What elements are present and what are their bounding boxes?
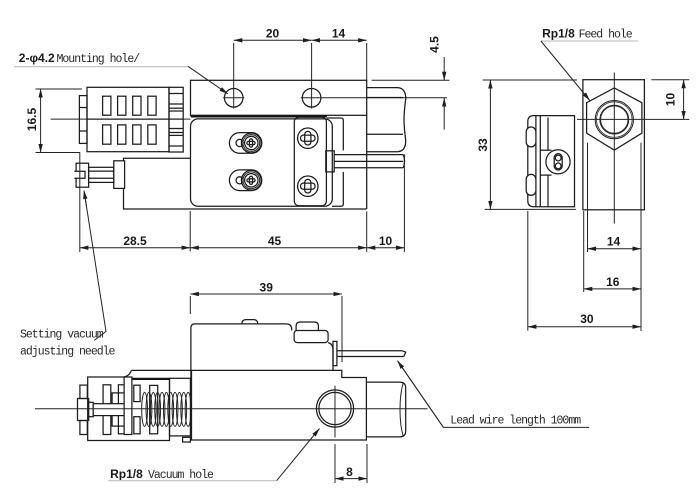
svg-text:adjusting needle: adjusting needle [20, 346, 116, 359]
svg-text:33: 33 [476, 138, 490, 152]
svg-text:2-φ4.2: 2-φ4.2 [19, 51, 55, 65]
svg-text:30: 30 [580, 312, 594, 326]
svg-text:10: 10 [663, 93, 677, 107]
svg-text:Vacuum hole: Vacuum hole [148, 469, 214, 482]
svg-text:Setting vacuum: Setting vacuum [20, 329, 104, 342]
svg-text:8: 8 [346, 465, 353, 479]
svg-text:39: 39 [260, 280, 274, 294]
svg-text:14: 14 [607, 235, 621, 249]
svg-text:20: 20 [266, 27, 280, 41]
svg-text:Rp1/8: Rp1/8 [542, 26, 575, 40]
svg-text:Feed hole: Feed hole [579, 28, 633, 41]
svg-text:45: 45 [268, 234, 282, 248]
svg-text:28.5: 28.5 [123, 234, 147, 248]
svg-text:10: 10 [379, 234, 393, 248]
svg-text:16: 16 [606, 275, 620, 289]
svg-text:14: 14 [332, 27, 346, 41]
svg-text:Rp1/8: Rp1/8 [110, 467, 143, 481]
svg-text:16.5: 16.5 [25, 107, 39, 131]
svg-text:Lead wire length 100mm: Lead wire length 100mm [450, 414, 581, 427]
svg-text:4.5: 4.5 [428, 36, 442, 53]
svg-text:Mounting hole/: Mounting hole/ [57, 53, 141, 66]
